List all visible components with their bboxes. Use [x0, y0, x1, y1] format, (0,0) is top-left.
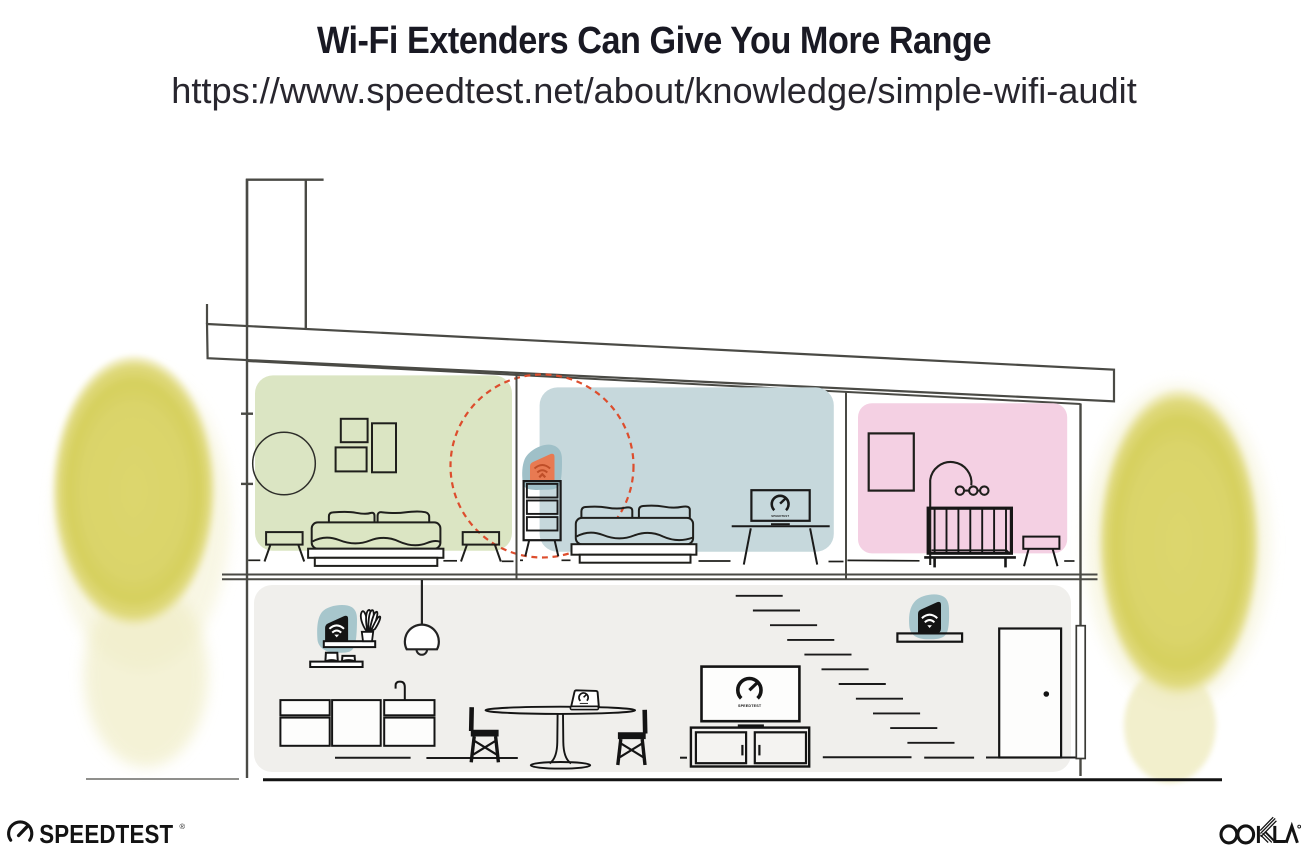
svg-text:SPEEDTEST: SPEEDTEST [39, 821, 173, 850]
svg-text:SPEEDTEST: SPEEDTEST [771, 514, 789, 518]
svg-text:https://www.speedtest.net/abou: https://www.speedtest.net/about/knowledg… [171, 70, 1137, 111]
svg-text:Wi-Fi Extenders Can Give You M: Wi-Fi Extenders Can Give You More Range [317, 18, 991, 61]
svg-text:®: ® [180, 822, 186, 831]
svg-text:SPEEDTEST: SPEEDTEST [738, 704, 762, 708]
